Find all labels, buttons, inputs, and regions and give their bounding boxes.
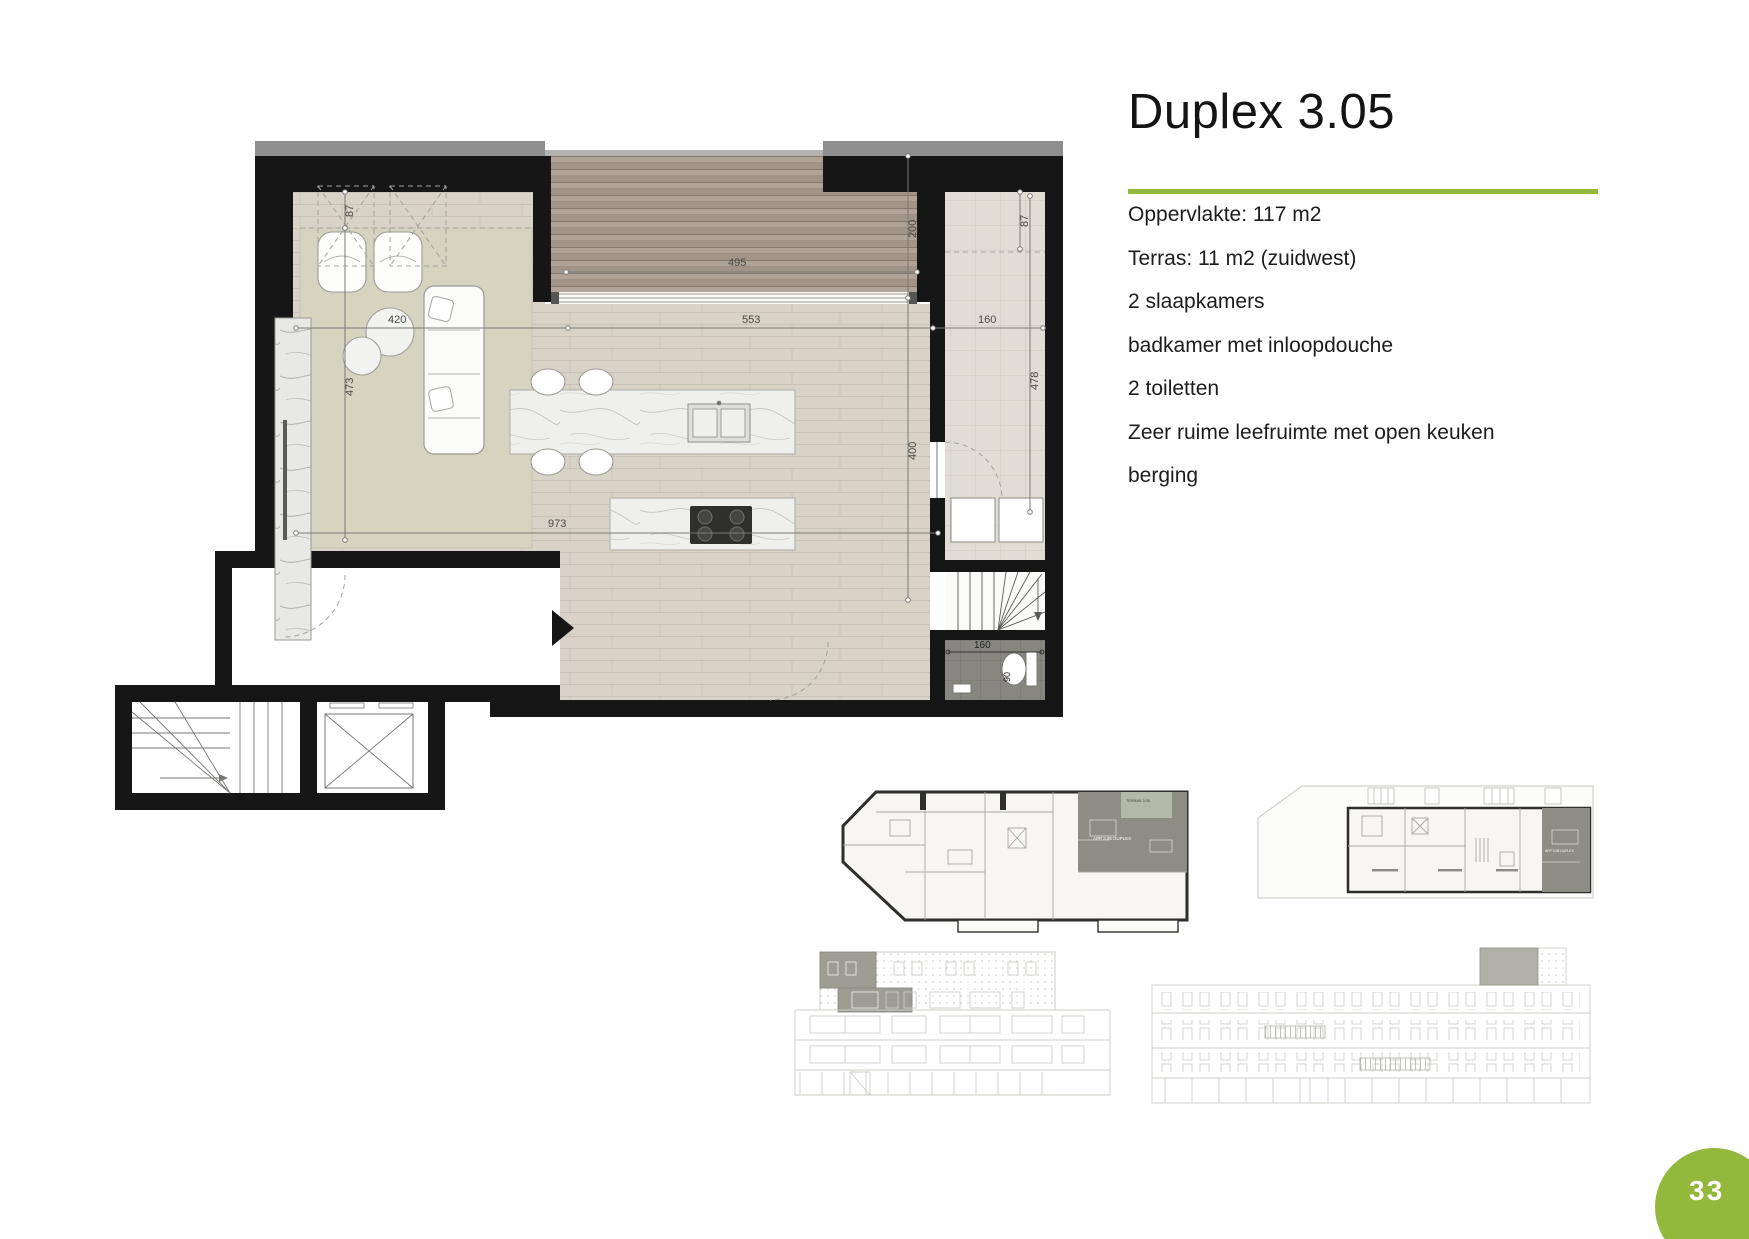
pillow [428,296,455,323]
pillow [428,386,454,412]
page-title: Duplex 3.05 [1128,84,1395,140]
balcony-railing [1265,1026,1325,1038]
dim-label: 973 [548,518,566,530]
balcony-railing [1360,1058,1430,1070]
detail-toiletten: 2 toiletten [1128,367,1648,411]
detail-oppervlakte: Oppervlakte: 117 m2 [1128,193,1648,237]
dim-label: 87 [1019,215,1031,227]
elevator [325,703,413,788]
dim-label: 478 [1029,372,1041,390]
armchair [374,232,422,292]
detail-leefruimte: Zeer ruime leefruimte met open keuken [1128,411,1648,455]
bar-chair [579,449,613,475]
elevation-highlight [1480,948,1538,985]
tiny-text-marks [1372,869,1518,871]
highlighted-terrace [1121,792,1172,818]
keyplan-upper-level: APP 3.05 DUPLEX [1258,786,1593,898]
stair-floor [945,572,1045,630]
appliance [999,498,1043,542]
elevation-rear [1152,948,1590,1103]
wardrobe [275,318,311,640]
keyplan-terrace-bump [1098,920,1178,932]
unit-details-list: Oppervlakte: 117 m2 Terras: 11 m2 (zuidw… [1128,193,1648,498]
detail-terras: Terras: 11 m2 (zuidwest) [1128,237,1648,281]
brochure-page: 420 553 160 495 973 87 473 87 200 400 47… [0,0,1749,1239]
main-floorplan: 420 553 160 495 973 87 473 87 200 400 47… [115,141,1063,810]
elevation-front [795,952,1110,1095]
keyplan-terrace-bump [958,920,1038,932]
sofa [424,286,484,454]
detail-berging: berging [1128,454,1648,498]
dim-label: 90 [1002,672,1012,682]
dim-label: 160 [974,640,991,651]
kitchen-island [510,390,795,454]
unit-label: APP 3.05 DUPLEX [1093,836,1131,841]
dim-label: 473 [344,378,356,396]
appliance [951,498,995,542]
dim-label: 200 [907,220,919,238]
bar-chair [531,369,565,395]
hob-counter [610,498,795,550]
wardrobe-handle [283,420,287,540]
dim-label: 420 [388,314,406,326]
coffee-table [343,337,381,375]
detail-badkamer: badkamer met inloopdouche [1128,324,1648,368]
dim-label: 87 [344,205,356,217]
floorplan-graphics: 420 553 160 495 973 87 473 87 200 400 47… [0,0,1749,1239]
detail-slaapkamers: 2 slaapkamers [1128,280,1648,324]
unit-label: APP 3.05 DUPLEX [1545,849,1575,853]
bar-chair [579,369,613,395]
dim-label: 160 [978,314,996,326]
bar-chair [531,449,565,475]
shower-drain [953,684,971,693]
sliding-window [551,292,917,304]
terrace-label: TERRAS 3.05 [1126,799,1150,803]
keyplan-lower-level: APP 3.05 DUPLEX TERRAS 3.05 [843,792,1187,932]
page-number: 33 [1689,1175,1724,1207]
dim-label: 553 [742,314,760,326]
dim-label: 495 [728,257,746,269]
armchair [318,232,366,292]
dim-label: 400 [907,442,919,460]
